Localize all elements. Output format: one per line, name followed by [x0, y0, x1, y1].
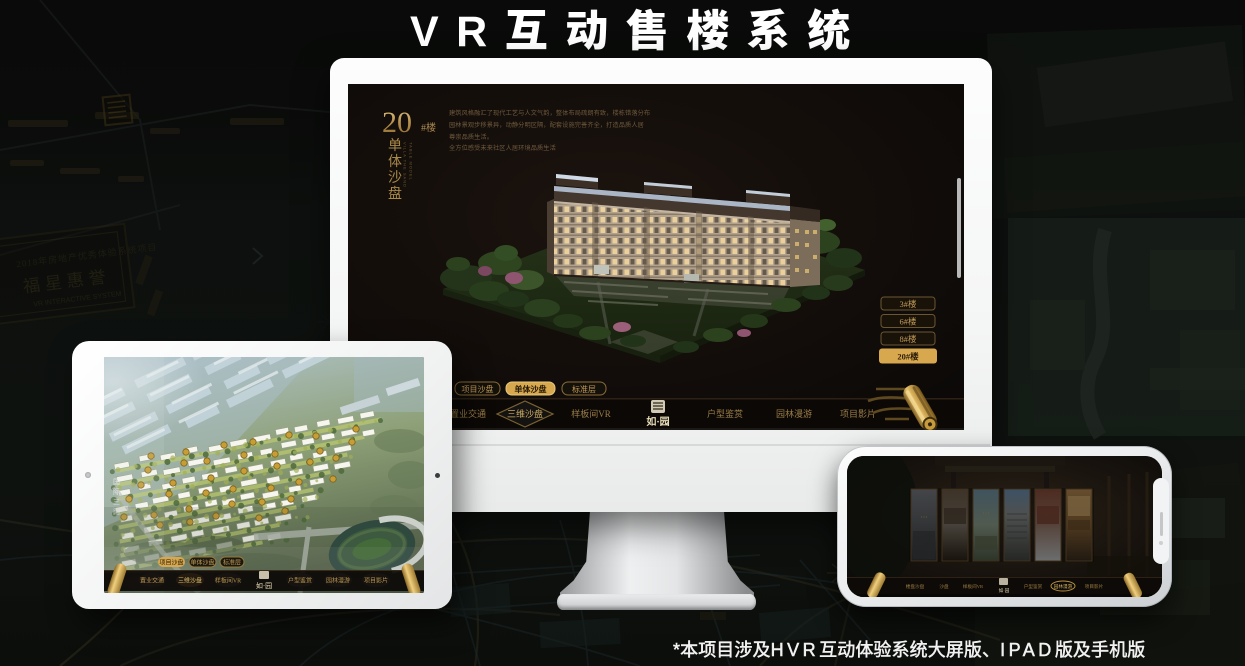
svg-text:标准层: 标准层 — [572, 384, 596, 394]
svg-text:单体沙盘: 单体沙盘 — [515, 384, 547, 394]
svg-text:沙盘: 沙盘 — [939, 583, 949, 589]
svg-text:标准层: 标准层 — [223, 559, 241, 567]
svg-text:项目影片: 项目影片 — [840, 408, 876, 419]
svg-text:项目影片: 项目影片 — [1085, 583, 1104, 590]
svg-text:VILLA THE SAND: VILLA THE SAND — [403, 142, 408, 188]
svg-text:项目影片: 项目影片 — [364, 577, 388, 585]
svg-text:单体沙盘: 单体沙盘 — [190, 559, 214, 567]
svg-text:园林漫游: 园林漫游 — [1054, 583, 1073, 590]
svg-text:园林漫游: 园林漫游 — [326, 577, 350, 585]
svg-text:如·园: 如·园 — [999, 587, 1010, 594]
svg-text:3#楼: 3#楼 — [899, 299, 917, 309]
svg-text:置业交通: 置业交通 — [140, 577, 164, 585]
svg-text:建筑风格融汇了现代工艺与人文气韵，整体布局疏朗有致，楼栋错落: 建筑风格融汇了现代工艺与人文气韵，整体布局疏朗有致，楼栋错落分布 — [449, 109, 650, 117]
svg-text:体: 体 — [388, 154, 402, 170]
svg-text:单: 单 — [388, 138, 402, 154]
svg-text:户型鉴赏: 户型鉴赏 — [707, 408, 743, 419]
svg-text:园林漫游: 园林漫游 — [776, 408, 812, 419]
svg-text:6#楼: 6#楼 — [899, 317, 917, 327]
svg-text:三维沙盘: 三维沙盘 — [178, 577, 202, 585]
svg-text:如·园: 如·园 — [256, 581, 272, 590]
svg-text:20: 20 — [382, 106, 412, 139]
svg-text:户型鉴赏: 户型鉴赏 — [288, 577, 312, 585]
svg-text:样板间VR: 样板间VR — [215, 577, 241, 585]
svg-text:沙: 沙 — [388, 171, 402, 186]
svg-text:园林景观步移景异，动静分明区隔，配套设施完善齐全，打造品质人: 园林景观步移景异，动静分明区隔，配套设施完善齐全，打造品质人居 — [449, 121, 644, 129]
svg-text:尊崇品质生活。: 尊崇品质生活。 — [449, 133, 493, 141]
svg-text:TABLE MODEL: TABLE MODEL — [409, 142, 414, 181]
svg-text:样板间VR: 样板间VR — [963, 583, 984, 590]
svg-text:项目沙盘: 项目沙盘 — [462, 384, 494, 394]
svg-text:8#楼: 8#楼 — [899, 334, 917, 344]
svg-text:盘: 盘 — [388, 185, 402, 202]
svg-text:楼盘沙盘: 楼盘沙盘 — [906, 583, 925, 590]
svg-text:样板间VR: 样板间VR — [571, 408, 611, 419]
svg-text:全方位感受未来社区人居环境品质生活: 全方位感受未来社区人居环境品质生活 — [449, 144, 556, 152]
svg-text:20#楼: 20#楼 — [897, 352, 919, 362]
svg-text:户型鉴赏: 户型鉴赏 — [1024, 583, 1043, 590]
svg-text:置业交通: 置业交通 — [450, 408, 486, 419]
svg-text:三维沙盘: 三维沙盘 — [507, 408, 543, 419]
svg-text:#楼: #楼 — [421, 121, 436, 134]
svg-text:如·园: 如·园 — [646, 415, 669, 428]
svg-text:项目沙盘: 项目沙盘 — [159, 559, 183, 567]
